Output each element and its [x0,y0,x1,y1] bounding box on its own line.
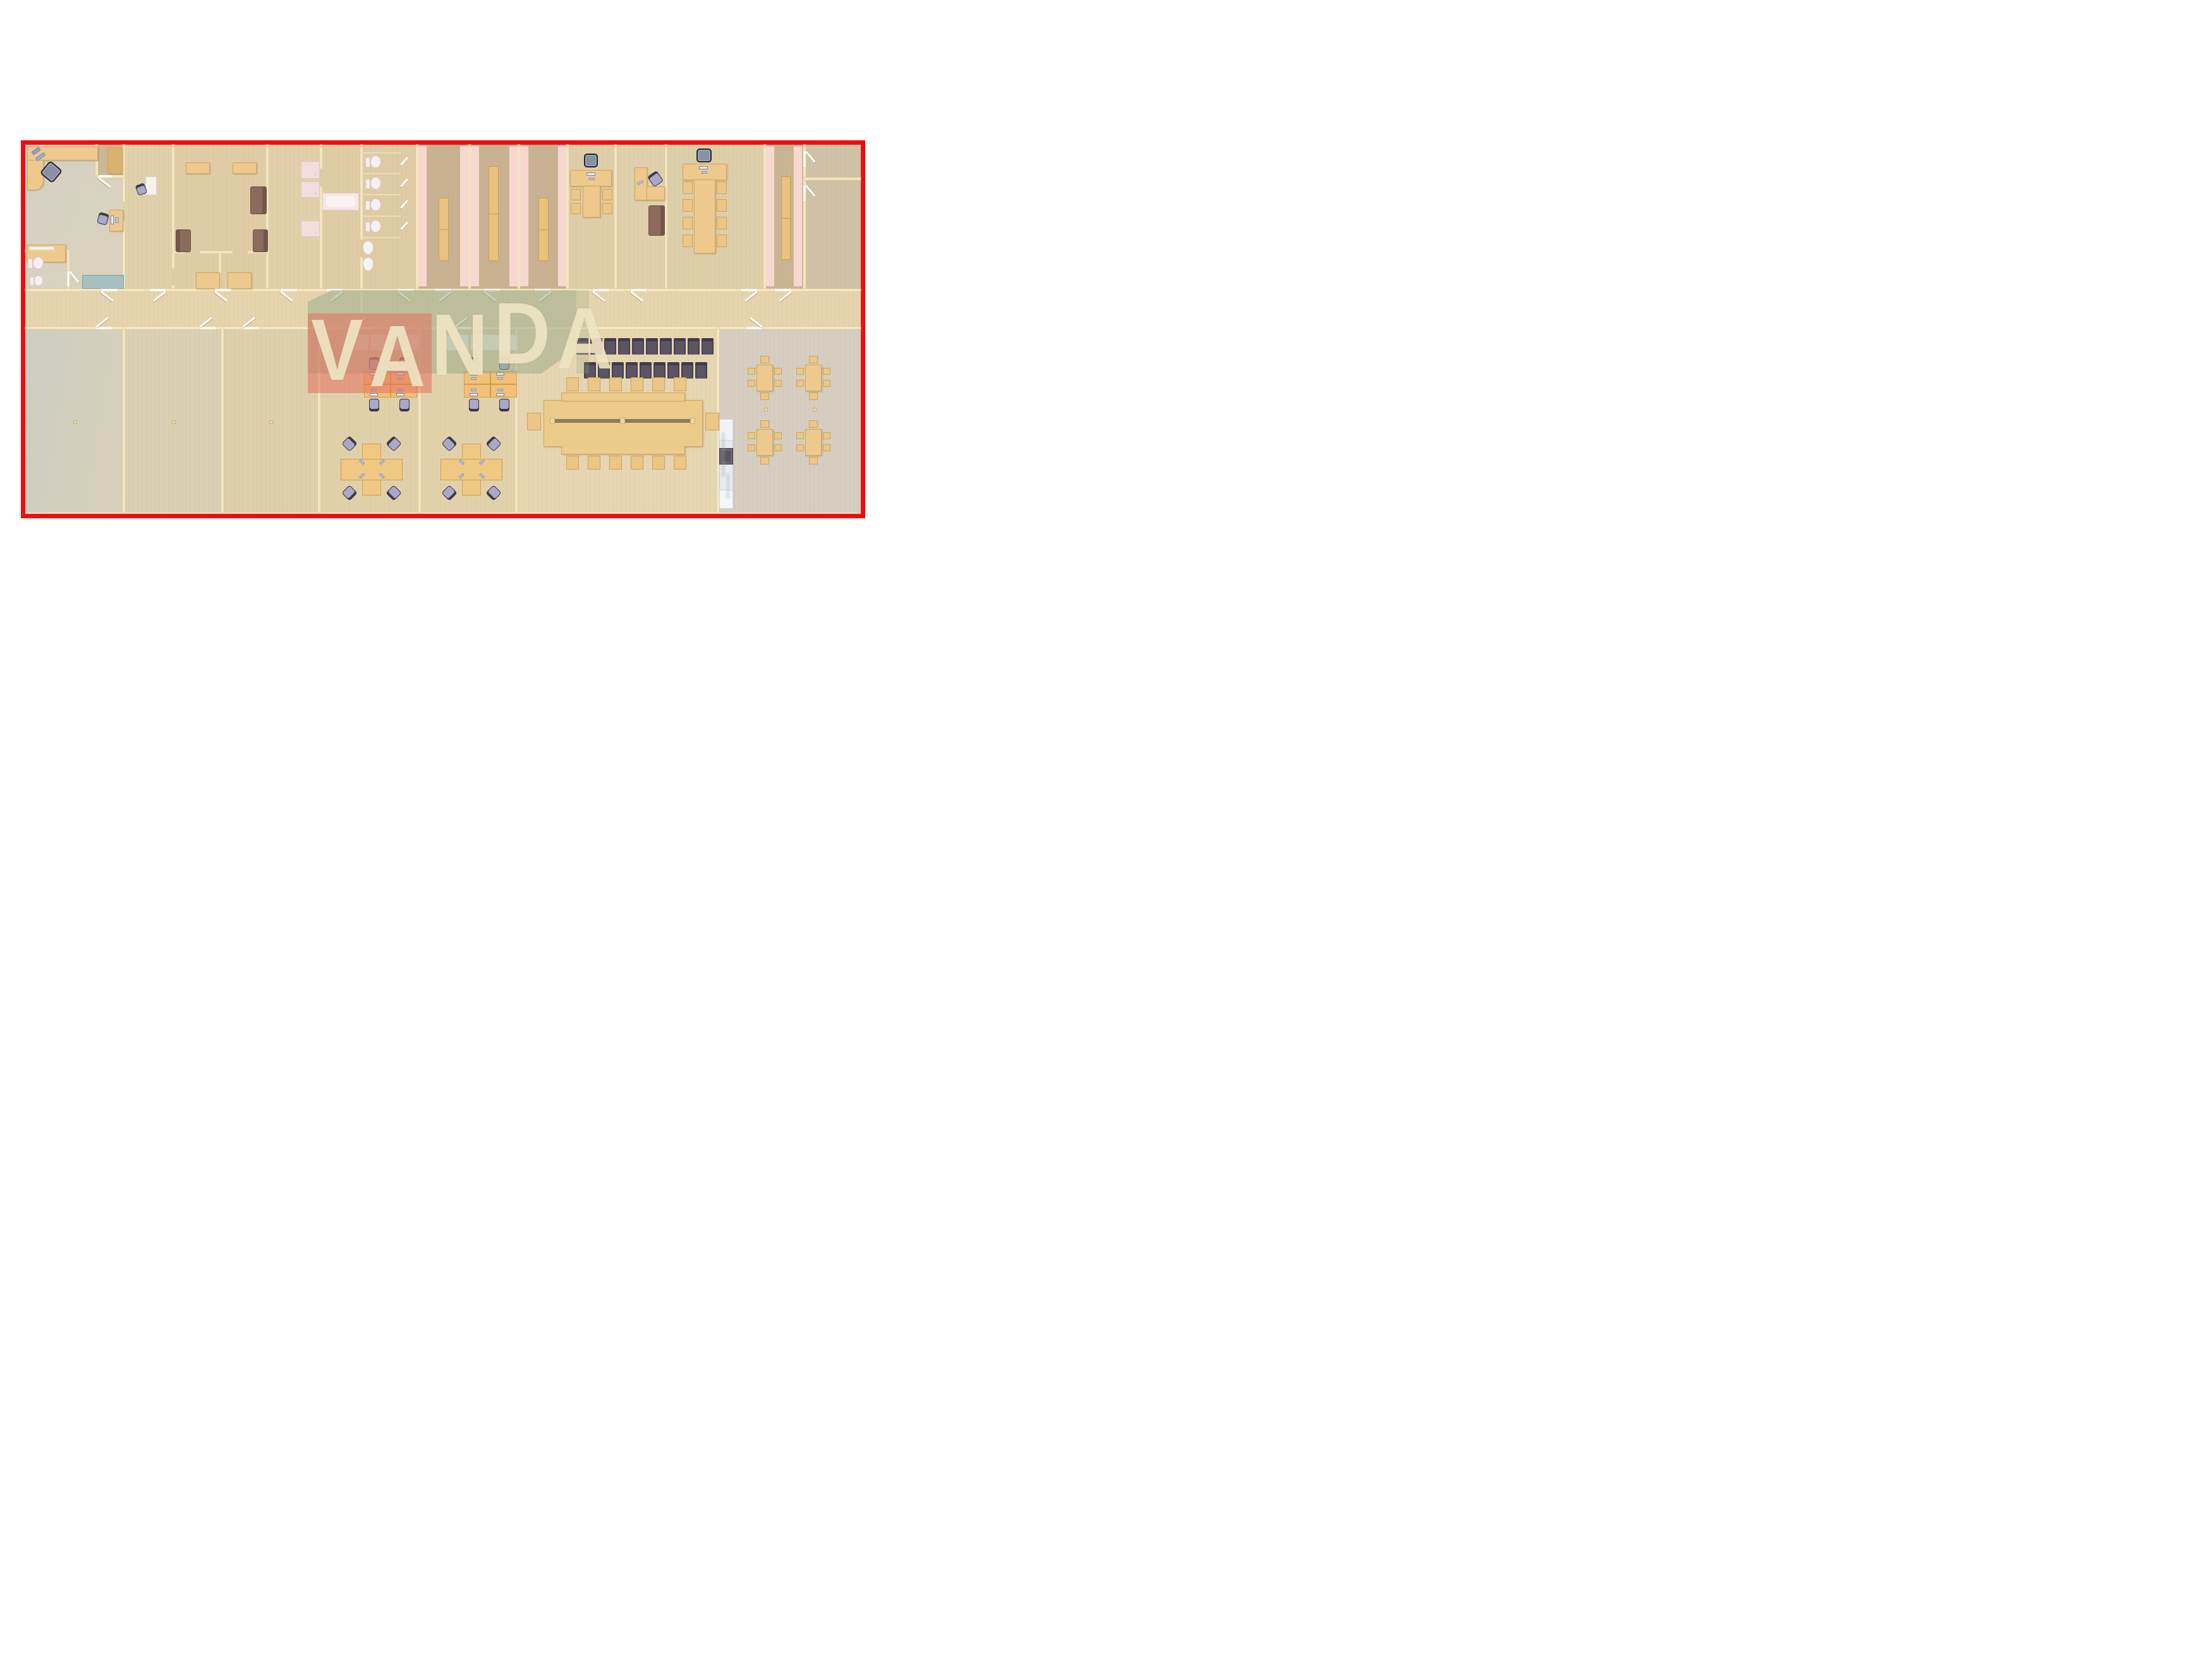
side-chair [571,203,581,214]
watermark-letter: A [369,313,426,400]
x-desk-horizontal [341,459,403,480]
wall [123,328,125,513]
waiting-chair [702,338,714,355]
canteen-chair [760,356,769,363]
bench [538,198,549,261]
meeting-table-stem [694,179,715,253]
door-icon [101,289,118,291]
wall [805,178,861,180]
toilet-icon [365,155,382,169]
keyboard-icon [497,389,503,391]
floor-marker [813,408,817,411]
door-icon [200,327,216,329]
lounge-table [186,162,210,174]
conference-table-extension [561,392,685,401]
waiting-chair [653,362,665,379]
wall [566,145,569,290]
canteen-chair [748,432,755,439]
door-icon [746,327,762,329]
office-chair [499,399,509,411]
side-table [228,272,252,289]
slot-cap [690,418,695,424]
door-icon [215,289,231,291]
stall-wall [362,173,401,174]
mat-strip [558,146,566,286]
mat-strip [520,146,528,286]
wardrobe [107,147,123,174]
meeting-chair [683,217,693,229]
stall-wall [362,216,401,217]
wall [123,145,125,202]
l-desk-horizontal [647,186,665,200]
canteen-chair [796,368,804,375]
door-icon [67,271,70,286]
canteen-chair [748,444,755,451]
canteen-chair [774,432,782,439]
canteen-chair [809,420,818,428]
conference-chair [705,413,719,430]
canteen-chair [823,432,830,439]
sofa [250,186,267,214]
conference-chair [631,377,643,391]
side-chair [571,189,581,200]
door-icon [775,289,791,291]
counter-top [29,246,54,250]
door-icon [631,289,647,291]
canteen-chair [760,420,769,428]
floor-plan: V A N D A [21,140,865,518]
canteen-chair [774,444,782,451]
small-desk [145,176,157,195]
canteen-chair [823,368,830,375]
executive-chair [584,154,598,167]
lounge-table [233,162,257,174]
waiting-chair [632,338,644,355]
floor-marker [764,408,768,411]
waiting-chair [688,338,700,355]
floor-reflection [722,432,725,477]
toilet-icon [365,198,382,212]
bidet-icon [30,275,44,287]
room-bathroom [321,145,362,290]
floor-marker [73,420,77,424]
mat-strip [471,146,479,286]
door-icon [243,327,259,329]
monitor-icon [586,173,595,176]
door-icon [803,185,806,202]
toilet-icon [28,256,44,270]
meeting-chair [683,234,693,247]
canteen-chair [748,368,755,375]
side-chair [602,203,612,214]
monitor-icon [496,393,504,396]
door-icon [281,289,297,291]
canteen-table [757,365,773,391]
waiting-chair [667,362,679,379]
canteen-chair [748,380,755,387]
l-desk-vertical [635,167,647,200]
conference-table-extension [561,446,685,454]
waiting-chair [640,362,652,379]
wall [320,145,322,169]
shower-icon [301,161,320,179]
watermark-letter: D [494,290,550,377]
shower-icon [301,181,320,198]
stall-wall [362,194,401,195]
room-small-office [124,145,173,290]
side-table [196,272,220,289]
bench [489,166,499,261]
stall-wall [362,237,401,238]
waiting-chair [618,338,630,355]
canteen-chair [823,444,830,451]
waiting-chair [695,362,707,379]
toilet-icon [365,176,382,190]
mat-strip [460,146,468,286]
canteen-chair [809,356,818,363]
canteen-chair [796,444,804,451]
page: V A N D A [0,0,885,664]
canteen-chair [796,432,804,439]
mat-strip [794,146,802,286]
keyboard-icon [115,217,119,223]
floor-reflection [727,473,729,499]
executive-desk-return [27,160,44,190]
meeting-chair [683,199,693,212]
wall [614,145,617,290]
keyboard-icon [702,171,707,174]
mat-strip [509,146,518,286]
conference-chair [652,377,665,391]
canteen-chair [774,368,782,375]
canteen-chair [760,457,769,465]
canteen-table [805,429,822,456]
bench [439,198,449,261]
bench [781,176,791,260]
waiting-chair [626,362,638,379]
bathtub-icon [322,193,359,210]
room-canteen [717,328,861,513]
conference-chair [527,413,541,430]
canteen-chair [796,380,804,387]
armchair [253,229,268,252]
waiting-chair [646,338,658,355]
waiting-chair [681,362,693,379]
conference-chair [566,456,579,470]
x-desk-horizontal [441,459,502,480]
waiting-chair [674,338,686,355]
canteen-table [757,429,773,456]
wall [221,328,224,513]
slot-cap [620,418,625,424]
watermark-letter: A [556,295,613,382]
canteen-chair [823,380,830,387]
door-icon [99,175,112,178]
monitor-icon [111,216,114,224]
waiting-chair [660,338,672,355]
canteen-chair [809,392,818,400]
slot-cap [550,418,555,424]
waiting-chair [612,362,624,379]
keyboard-icon [589,178,595,180]
mat-strip [766,146,774,286]
conference-chair [674,456,686,470]
door-icon [803,151,806,167]
stall-wall [362,152,401,154]
shower-icon [301,221,320,237]
wall [200,251,233,253]
wall [67,250,70,272]
meeting-chair [717,234,727,247]
floor-marker [172,420,176,424]
executive-chair [696,149,712,162]
conference-chair [652,456,665,470]
armchair [176,229,191,252]
meeting-chair [717,199,727,212]
counter-section [719,490,733,509]
meeting-chair [717,217,727,229]
office-chair [469,399,479,411]
canteen-chair [760,392,769,400]
watermark-text: V A N D A [311,296,613,384]
floor-marker [269,420,273,424]
wall [266,145,269,290]
sofa [648,205,665,236]
canteen-chair [809,457,818,465]
watermark-letter: N [432,301,489,389]
conference-chair [631,456,643,470]
door-icon [96,327,112,329]
canteen-table [805,365,822,391]
wall [360,145,363,240]
side-chair [602,189,612,200]
conference-chair [674,377,686,391]
meeting-chair [683,181,693,194]
wall [665,145,667,290]
teal-sideboard [82,275,124,289]
conference-chair [588,456,600,470]
door-icon [741,289,757,291]
meeting-chair [717,181,727,194]
door-icon [149,289,166,291]
canteen-chair [774,380,782,387]
watermark-letter: V [311,307,363,394]
mat-strip [418,146,427,286]
conference-chair [609,456,622,470]
monitor-icon [699,166,708,169]
t-desk-stem [583,186,600,217]
wall [172,145,174,269]
toilet-icon [365,219,382,233]
